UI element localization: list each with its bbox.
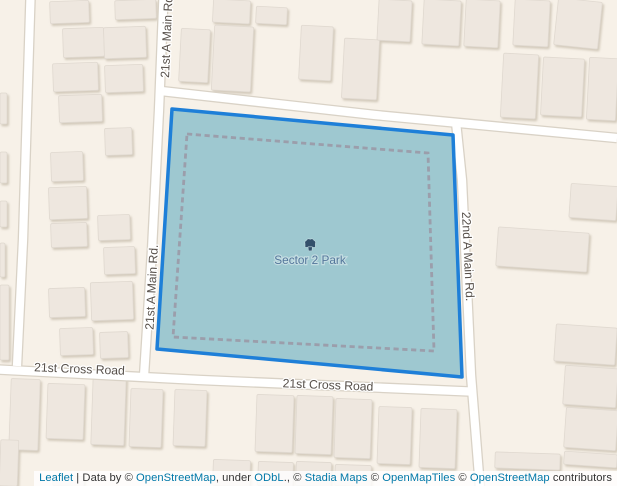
svg-text:Sector 2 Park: Sector 2 Park	[274, 253, 346, 267]
